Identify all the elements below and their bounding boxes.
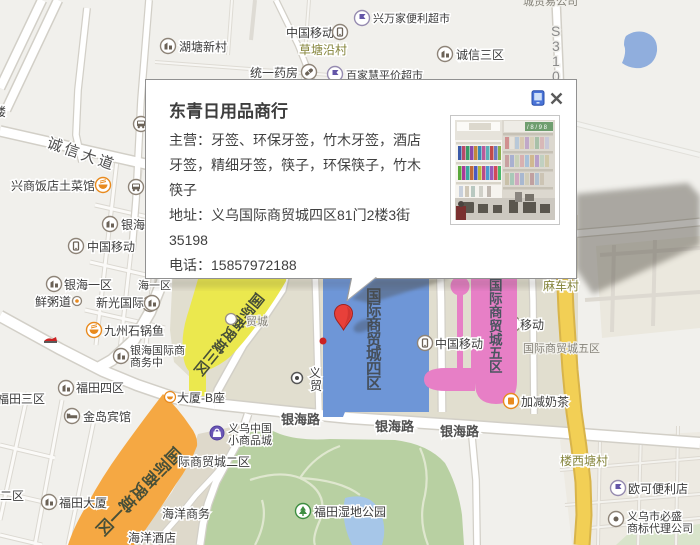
svg-text:义乌中国: 义乌中国 — [228, 421, 272, 435]
svg-text:/ 8 / 9 8: / 8 / 9 8 — [527, 125, 548, 131]
svg-text:草塘沿村: 草塘沿村 — [299, 42, 347, 57]
svg-text:福田三区: 福田三区 — [0, 391, 45, 406]
svg-text:金岛宾馆: 金岛宾馆 — [83, 409, 131, 424]
svg-text:大厦-B座: 大厦-B座 — [177, 390, 225, 405]
svg-text:二区: 二区 — [0, 489, 24, 503]
svg-text:海洋酒店: 海洋酒店 — [128, 530, 176, 545]
svg-text:移动: 移动 — [520, 318, 544, 332]
svg-text:贸城: 贸城 — [246, 315, 268, 328]
svg-text:诚信三区: 诚信三区 — [456, 48, 504, 62]
svg-text:商标代理公司: 商标代理公司 — [627, 521, 693, 535]
svg-text:鲜粥道: 鲜粥道 — [35, 295, 71, 309]
svg-text:银海国际商: 银海国际商 — [130, 343, 185, 357]
svg-text:麻车村: 麻车村 — [543, 278, 579, 293]
svg-text:福田大厦: 福田大厦 — [59, 495, 107, 510]
svg-text:银海路: 银海路 — [440, 424, 480, 439]
svg-text:楼西塘村: 楼西塘村 — [560, 453, 608, 468]
svg-text:商务中: 商务中 — [130, 355, 163, 369]
svg-text:兴商饭店土菜馆: 兴商饭店土菜馆 — [11, 178, 95, 193]
svg-text:义: 义 — [309, 366, 321, 380]
svg-text:海一区: 海一区 — [138, 278, 171, 292]
svg-text:国际商贸城五区: 国际商贸城五区 — [523, 341, 600, 355]
svg-text:中国移动: 中国移动 — [286, 25, 334, 40]
svg-text:国际商贸城五区: 国际商贸城五区 — [489, 278, 503, 375]
svg-text:湖塘新村: 湖塘新村 — [179, 39, 227, 54]
svg-text:兴万家便利超市: 兴万家便利超市 — [373, 11, 450, 25]
svg-text:加减奶茶: 加减奶茶 — [521, 394, 569, 409]
svg-text:贸: 贸 — [310, 379, 322, 393]
svg-text:中国移动: 中国移动 — [87, 239, 135, 254]
svg-text:福田四区: 福田四区 — [76, 380, 124, 395]
svg-text:欧可便利店: 欧可便利店 — [628, 482, 688, 496]
svg-text:小商品城: 小商品城 — [228, 433, 272, 447]
svg-text:银海路: 银海路 — [375, 419, 415, 434]
svg-text:九州石锅鱼: 九州石锅鱼 — [104, 323, 164, 338]
svg-text:楼: 楼 — [0, 104, 6, 119]
svg-text:海洋商务: 海洋商务 — [162, 506, 210, 521]
svg-text:城贸易公司: 城贸易公司 — [523, 0, 578, 8]
svg-text:际商贸城二区: 际商贸城二区 — [178, 454, 250, 469]
svg-text:中国移动: 中国移动 — [435, 336, 483, 351]
svg-text:银海: 银海 — [121, 217, 145, 232]
svg-text:银海一区: 银海一区 — [64, 277, 112, 292]
svg-text:统一药房: 统一药房 — [250, 65, 298, 80]
svg-text:新光国际: 新光国际 — [96, 295, 144, 310]
svg-text:义乌市必盛: 义乌市必盛 — [627, 509, 682, 523]
svg-text:福田湿地公园: 福田湿地公园 — [314, 504, 386, 519]
svg-text:S310: S310 — [551, 23, 560, 84]
svg-text:银海路: 银海路 — [281, 412, 321, 427]
